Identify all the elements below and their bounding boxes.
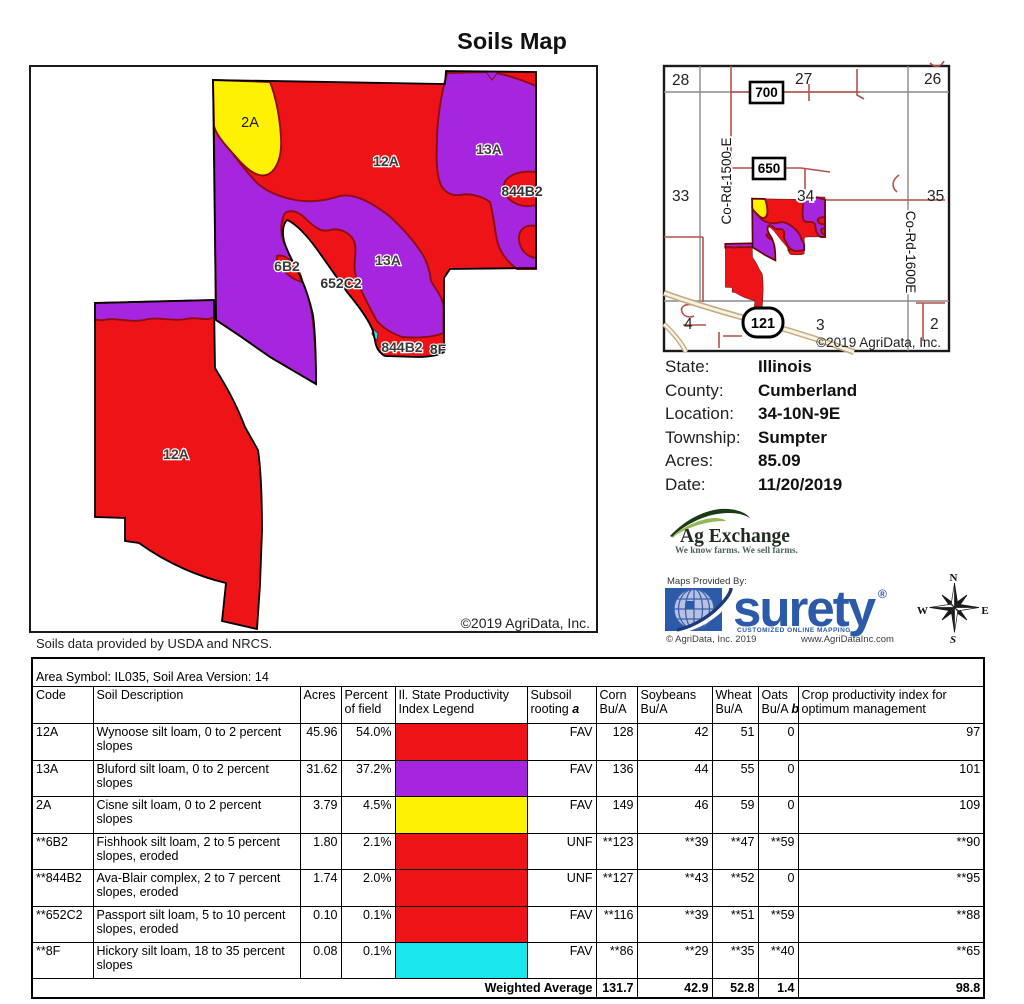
svg-text:28: 28 bbox=[672, 72, 689, 89]
svg-text:27: 27 bbox=[795, 71, 812, 88]
svg-text:Co-Rd-1500-E: Co-Rd-1500-E bbox=[719, 137, 734, 224]
svg-text:©2019 AgriData, Inc.: ©2019 AgriData, Inc. bbox=[461, 615, 590, 631]
svg-text:2A: 2A bbox=[241, 115, 259, 131]
svg-text:700: 700 bbox=[755, 85, 778, 100]
svg-text:2: 2 bbox=[930, 316, 939, 333]
svg-text:35: 35 bbox=[927, 188, 944, 205]
svg-text:©2019 AgriData, Inc.: ©2019 AgriData, Inc. bbox=[816, 335, 941, 350]
svg-text:N: N bbox=[950, 572, 958, 584]
svg-text:4: 4 bbox=[684, 316, 693, 333]
svg-text:650: 650 bbox=[758, 161, 781, 176]
svg-text:W: W bbox=[917, 605, 928, 617]
svg-text:13A: 13A bbox=[375, 252, 401, 268]
svg-text:12A: 12A bbox=[163, 446, 189, 462]
svg-text:844B2: 844B2 bbox=[501, 183, 542, 199]
svg-text:Co-Rd-1600E: Co-Rd-1600E bbox=[903, 211, 918, 294]
svg-text:S: S bbox=[950, 634, 956, 646]
svg-text:34: 34 bbox=[797, 188, 815, 205]
svg-text:6B2: 6B2 bbox=[274, 258, 300, 274]
svg-text:844B2: 844B2 bbox=[381, 339, 422, 355]
svg-text:26: 26 bbox=[924, 71, 941, 88]
svg-text:E: E bbox=[981, 605, 988, 617]
svg-text:3: 3 bbox=[816, 317, 825, 334]
svg-text:13A: 13A bbox=[476, 141, 502, 157]
svg-text:121: 121 bbox=[751, 316, 775, 332]
svg-text:8F: 8F bbox=[430, 341, 447, 357]
svg-text:652C2: 652C2 bbox=[320, 275, 361, 291]
svg-text:12A: 12A bbox=[373, 153, 399, 169]
svg-text:33: 33 bbox=[672, 188, 689, 205]
